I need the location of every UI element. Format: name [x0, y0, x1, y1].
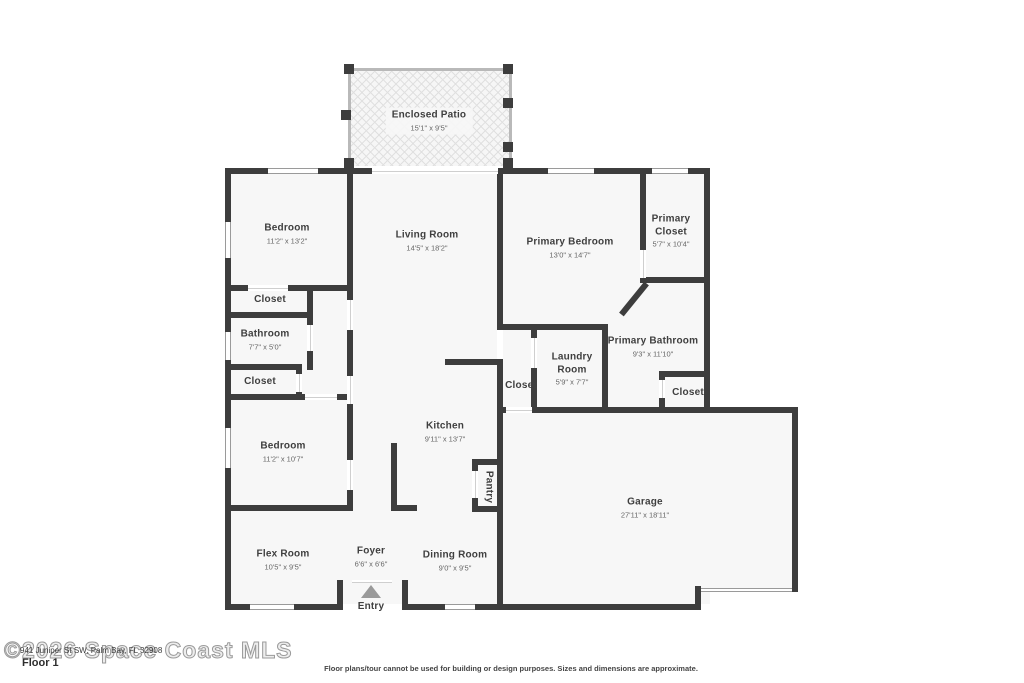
wall: [659, 371, 710, 377]
room-label-bathroom: Bathroom7'7" x 5'0": [241, 329, 290, 352]
patio-screen-wall: [348, 68, 512, 71]
door-opening: [347, 460, 353, 490]
room-label-primary-bedroom: Primary Bedroom13'0" x 14'7": [527, 237, 614, 260]
room-name: Primary Closet: [640, 213, 702, 238]
room-label-pantry: Pantry: [482, 471, 495, 503]
door-opening: [296, 374, 302, 392]
room-name: Closet: [505, 380, 537, 393]
disclaimer-text: Floor plans/tour cannot be used for buil…: [324, 664, 698, 673]
window: [701, 588, 792, 592]
door-opening: [307, 325, 313, 351]
wall: [391, 505, 417, 511]
room-label-garage: Garage27'11" x 18'11": [621, 497, 669, 520]
room-name: Foyer: [355, 546, 388, 559]
room-dimensions: 11'2" x 10'7": [260, 454, 305, 463]
room-label-closet1: Closet: [254, 294, 286, 307]
room-label-foyer: Foyer6'6" x 6'6": [355, 546, 388, 569]
room-label-primary-bathroom: Primary Bathroom9'3" x 11'10": [578, 336, 728, 359]
door-opening: [305, 394, 337, 400]
window: [268, 168, 318, 174]
window: [225, 332, 231, 360]
room-label-primary-closet: Primary Closet5'7" x 10'4": [640, 213, 702, 248]
window: [652, 168, 688, 174]
entry-arrow-icon: [361, 585, 381, 598]
room-name: Primary Bathroom: [578, 336, 728, 349]
room-name: Bedroom: [260, 441, 305, 454]
room-name: Pantry: [482, 471, 495, 503]
room-dimensions: 11'2" x 13'2": [264, 236, 309, 245]
room-name: Bathroom: [241, 329, 290, 342]
room-name: Dining Room: [423, 550, 487, 563]
room-dimensions: 9'0" x 9'5": [423, 563, 487, 572]
door-opening: [347, 300, 353, 330]
room-name: Flex Room: [257, 549, 310, 562]
room-label-kitchen: Kitchen9'11" x 13'7": [425, 421, 466, 444]
room-dimensions: 27'11" x 18'11": [621, 510, 669, 519]
wall: [640, 277, 710, 283]
door-opening: [352, 580, 392, 583]
door-opening: [248, 285, 288, 291]
room-dimensions: 14'5" x 18'2": [396, 243, 459, 252]
wall: [402, 580, 408, 610]
wall: [445, 359, 503, 365]
room-dimensions: 9'3" x 11'10": [578, 349, 728, 358]
room-label-dining: Dining Room9'0" x 9'5": [423, 550, 487, 573]
patio-screen-wall: [509, 68, 512, 168]
room-area: [701, 407, 792, 588]
room-label-bath-closet: Closet: [672, 387, 704, 400]
wall: [497, 174, 503, 330]
door-opening: [372, 168, 498, 174]
room-name: Garage: [621, 497, 669, 510]
door-opening: [659, 380, 665, 398]
door-opening: [472, 471, 478, 498]
room-name: Enclosed Patio: [392, 110, 467, 123]
room-area: [497, 407, 701, 604]
patio-post: [503, 158, 513, 168]
room-dimensions: 10'5" x 9'5": [257, 562, 310, 571]
patio-post: [344, 158, 354, 168]
wall: [391, 443, 397, 511]
room-name: Closet: [672, 387, 704, 400]
room-name: Closet: [244, 376, 276, 389]
patio-post: [341, 110, 351, 120]
room-name: Living Room: [396, 230, 459, 243]
patio-post: [503, 98, 513, 108]
room-dimensions: 5'7" x 10'4": [640, 239, 702, 248]
floor-label: Floor 1: [22, 657, 59, 669]
room-dimensions: 9'11" x 13'7": [425, 434, 466, 443]
wall: [225, 505, 351, 511]
wall: [497, 359, 503, 604]
patio-post: [344, 64, 354, 74]
room-label-bedroom1: Bedroom11'2" x 13'2": [264, 223, 309, 246]
room-dimensions: 13'0" x 14'7": [527, 250, 614, 259]
door-opening: [531, 338, 537, 368]
window: [225, 222, 231, 258]
wall: [497, 324, 608, 330]
door-opening: [640, 250, 646, 278]
wall: [497, 407, 798, 413]
room-dimensions: 6'6" x 6'6": [355, 559, 388, 568]
room-label-hall-closet: Closet: [505, 380, 537, 393]
room-dimensions: 5'9" x 7'7": [543, 377, 601, 386]
wall: [231, 312, 313, 318]
patio-post: [503, 142, 513, 152]
room-dimensions: 15'1" x 9'5": [392, 123, 467, 132]
window: [225, 428, 231, 468]
room-name: Closet: [254, 294, 286, 307]
room-label-closet2: Closet: [244, 376, 276, 389]
wall: [792, 407, 798, 592]
room-name: Bedroom: [264, 223, 309, 236]
room-dimensions: 7'7" x 5'0": [241, 342, 290, 351]
door-opening: [347, 376, 353, 404]
window: [548, 168, 594, 174]
room-label-bedroom2: Bedroom11'2" x 10'7": [260, 441, 305, 464]
property-address: 941 Juniper St SW, Palm Bay, FL 32908: [20, 646, 162, 655]
window: [250, 604, 294, 610]
room-name: Entry: [358, 601, 385, 614]
patio-post: [503, 64, 513, 74]
floor-plan: Enclosed Patio15'1" x 9'5"Bedroom11'2" x…: [0, 0, 1024, 683]
room-name: Kitchen: [425, 421, 466, 434]
door-opening: [506, 407, 532, 413]
room-name: Primary Bedroom: [527, 237, 614, 250]
door-opening: [497, 330, 503, 359]
wall: [231, 364, 302, 370]
room-label-patio: Enclosed Patio15'1" x 9'5": [386, 108, 473, 135]
room-label-entry: Entry: [358, 601, 385, 614]
window: [445, 604, 475, 610]
room-label-living: Living Room14'5" x 18'2": [396, 230, 459, 253]
room-label-flex: Flex Room10'5" x 9'5": [257, 549, 310, 572]
